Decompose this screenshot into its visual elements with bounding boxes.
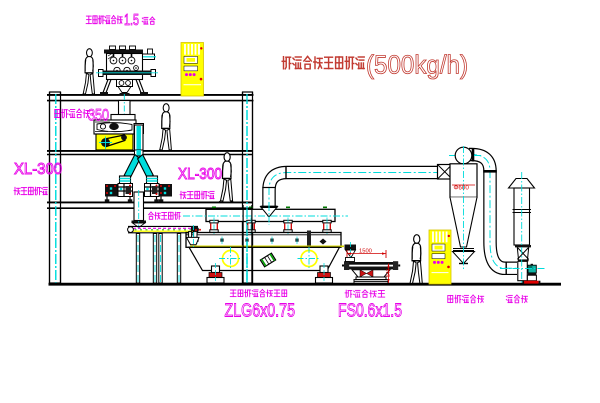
svg-text:540: 540 [386, 268, 392, 277]
svg-text:Φ600: Φ600 [454, 185, 470, 192]
svg-text:(500kg/h): (500kg/h) [366, 50, 468, 80]
svg-text:FS0.6x1.5: FS0.6x1.5 [338, 300, 402, 321]
svg-text:350: 350 [88, 106, 109, 125]
svg-text:XL-300: XL-300 [178, 166, 222, 183]
svg-text:XL-300: XL-300 [14, 161, 62, 178]
svg-text:ZLG6x0.75: ZLG6x0.75 [225, 300, 296, 321]
svg-text:1500: 1500 [359, 248, 372, 254]
svg-text:1.5: 1.5 [124, 12, 139, 29]
